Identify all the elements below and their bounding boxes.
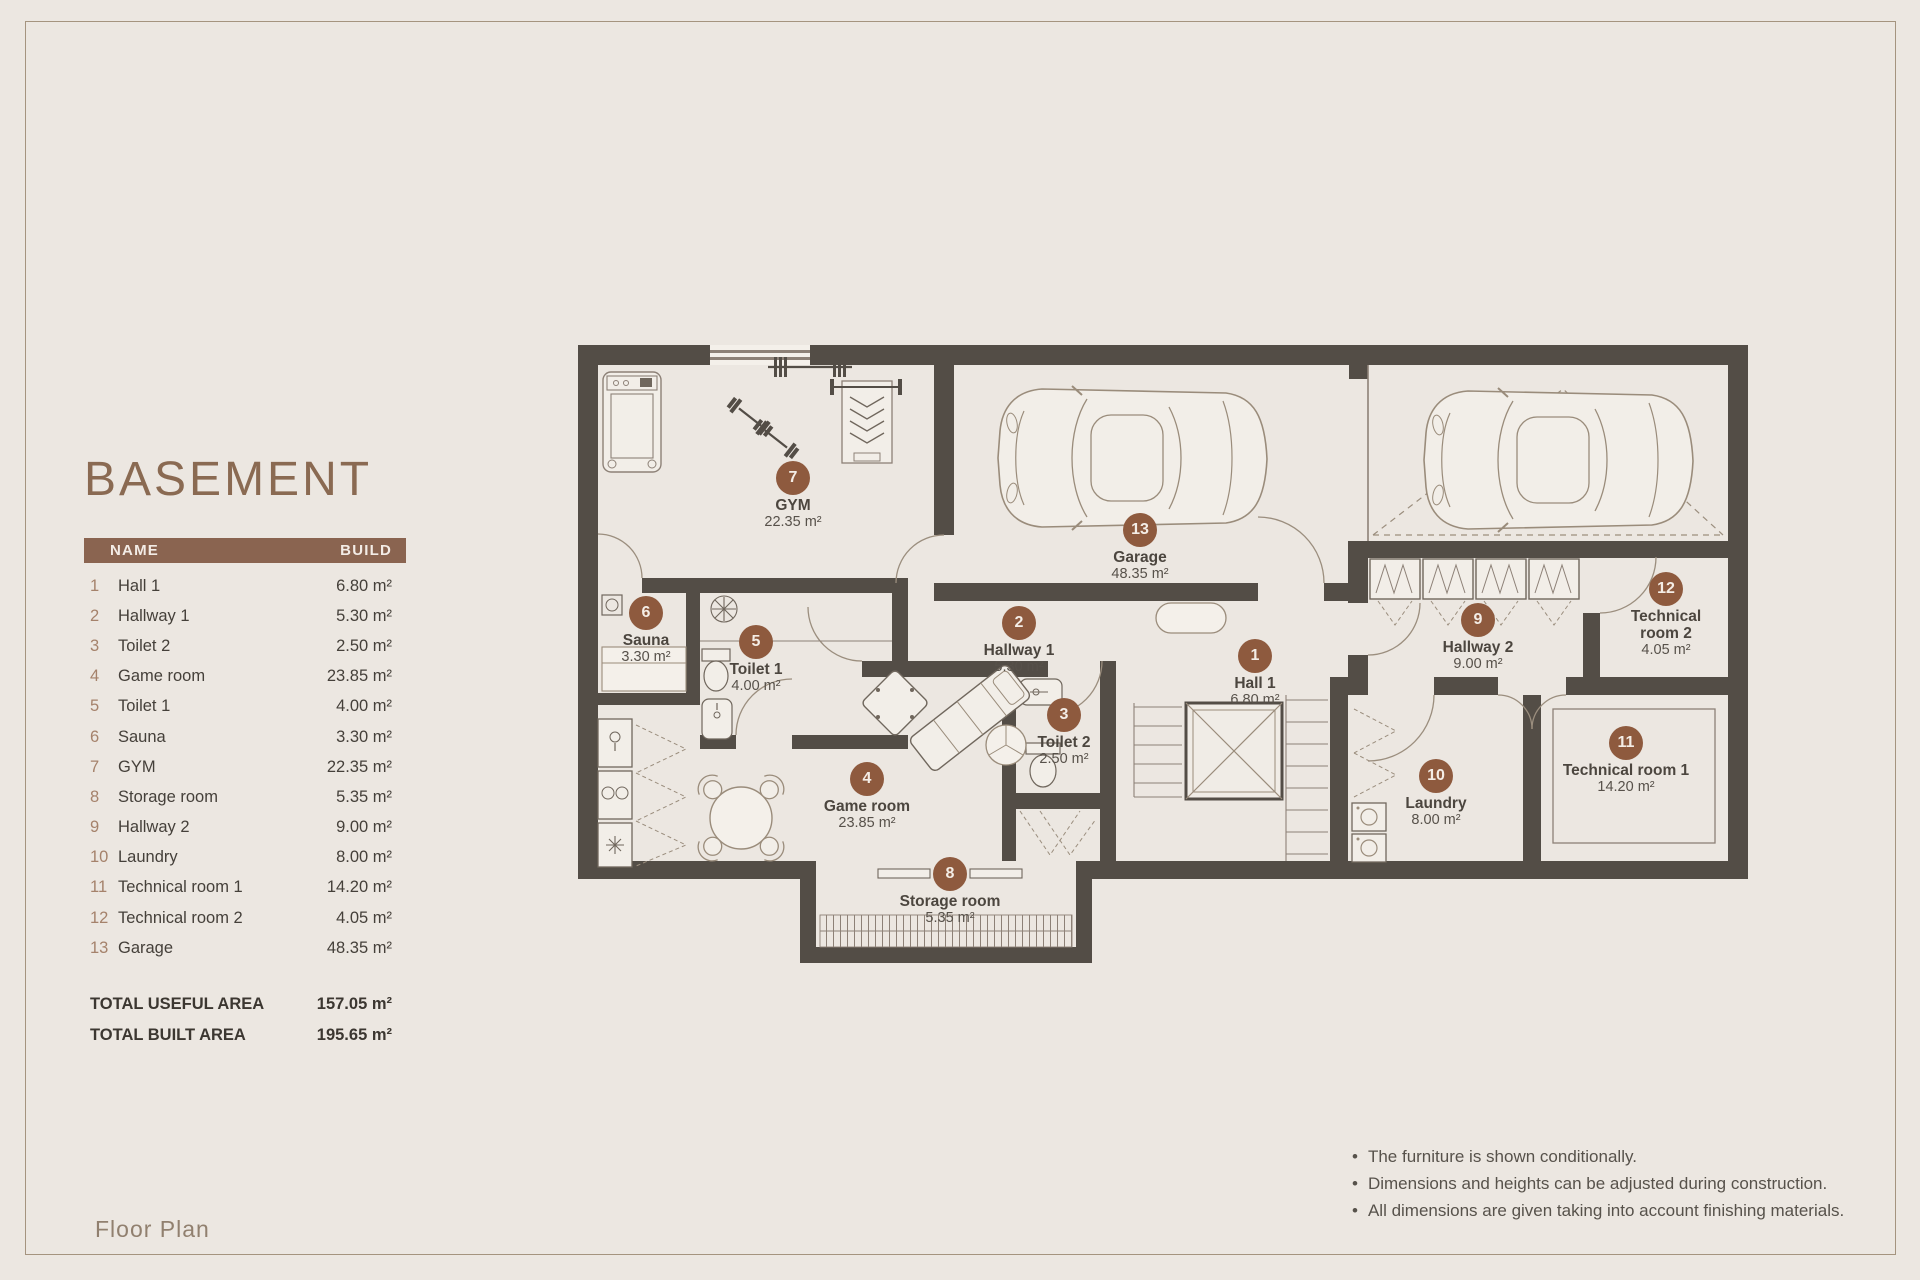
room-area: 23.85 m² (807, 815, 927, 832)
row-number: 8 (90, 788, 118, 807)
row-number: 1 (90, 577, 118, 596)
floor-plan-label: Floor Plan (95, 1216, 210, 1243)
room-number-badge: 11 (1609, 726, 1643, 760)
room-label-storage-room: 8Storage room5.35 m² (890, 857, 1010, 927)
room-area: 5.30 m² (959, 659, 1079, 676)
row-room-area: 6.80 m² (336, 577, 392, 596)
row-number: 6 (90, 728, 118, 747)
room-number-badge: 4 (850, 762, 884, 796)
room-area: 48.35 m² (1080, 566, 1200, 583)
table-header: NAME BUILD (84, 538, 406, 563)
table-header-build: BUILD (340, 542, 392, 559)
row-room-area: 3.30 m² (336, 728, 392, 747)
total-label: TOTAL BUILT AREA (90, 1026, 246, 1045)
room-area: 22.35 m² (733, 514, 853, 531)
room-name: Technical room 2 (1622, 608, 1710, 642)
room-number-badge: 7 (776, 461, 810, 495)
row-room-area: 4.05 m² (336, 909, 392, 928)
page-title: BASEMENT (84, 456, 372, 504)
row-room-area: 14.20 m² (327, 878, 392, 897)
room-name: GYM (733, 497, 853, 514)
row-number: 3 (90, 637, 118, 656)
room-label-game-room: 4Game room23.85 m² (807, 762, 927, 832)
room-number-badge: 10 (1419, 759, 1453, 793)
table-row: 7GYM22.35 m² (84, 752, 406, 782)
bullet-icon: • (1352, 1143, 1358, 1170)
row-room-name: Hall 1 (118, 577, 336, 596)
room-label-sauna: 6Sauna3.30 m² (586, 596, 706, 666)
row-room-area: 5.35 m² (336, 788, 392, 807)
room-table: NAME BUILD 1Hall 16.80 m²2Hallway 15.30 … (84, 538, 406, 1051)
table-row: 11Technical room 114.20 m² (84, 873, 406, 903)
room-name: Storage room (890, 893, 1010, 910)
room-number-badge: 1 (1238, 639, 1272, 673)
room-area: 9.00 m² (1418, 656, 1538, 673)
table-row: 1Hall 16.80 m² (84, 571, 406, 601)
row-number: 13 (90, 939, 118, 958)
row-number: 7 (90, 758, 118, 777)
row-room-name: Technical room 1 (118, 878, 327, 897)
row-room-name: GYM (118, 758, 327, 777)
room-label-technical-room-1: 11Technical room 114.20 m² (1551, 726, 1701, 796)
room-number-badge: 3 (1047, 698, 1081, 732)
table-row: 4Game room23.85 m² (84, 662, 406, 692)
note-item: •The furniture is shown conditionally. (1352, 1143, 1908, 1170)
total-label: TOTAL USEFUL AREA (90, 995, 264, 1014)
room-number-badge: 13 (1123, 513, 1157, 547)
room-number-badge: 12 (1649, 572, 1683, 606)
room-label-technical-room-2: 12Technical room 24.05 m² (1622, 572, 1710, 659)
total-value: 157.05 m² (317, 995, 392, 1014)
room-area: 2.50 m² (1016, 751, 1112, 768)
row-room-area: 8.00 m² (336, 848, 392, 867)
room-area: 3.30 m² (586, 649, 706, 666)
table-row: 9Hallway 29.00 m² (84, 813, 406, 843)
room-name: Hallway 2 (1418, 639, 1538, 656)
row-room-name: Technical room 2 (118, 909, 336, 928)
table-row: 10Laundry8.00 m² (84, 843, 406, 873)
total-row: TOTAL BUILT AREA195.65 m² (84, 1020, 406, 1051)
total-value: 195.65 m² (317, 1026, 392, 1045)
room-label-hallway-1: 2Hallway 15.30 m² (959, 606, 1079, 676)
row-room-area: 2.50 m² (336, 637, 392, 656)
room-name: Toilet 1 (696, 661, 816, 678)
room-label-gym: 7GYM22.35 m² (733, 461, 853, 531)
row-room-name: Hallway 1 (118, 607, 336, 626)
row-room-area: 23.85 m² (327, 667, 392, 686)
room-area: 4.00 m² (696, 678, 816, 695)
room-area: 6.80 m² (1195, 692, 1315, 709)
bullet-icon: • (1352, 1170, 1358, 1197)
row-number: 12 (90, 909, 118, 928)
row-number: 9 (90, 818, 118, 837)
room-labels: 1Hall 16.80 m²2Hallway 15.30 m²3Toilet 2… (578, 345, 1768, 995)
table-row: 6Sauna3.30 m² (84, 722, 406, 752)
room-label-garage: 13Garage48.35 m² (1080, 513, 1200, 583)
room-label-toilet-2: 3Toilet 22.50 m² (1016, 698, 1112, 768)
notes-list: •The furniture is shown conditionally.•D… (1352, 1143, 1908, 1224)
room-area: 8.00 m² (1376, 812, 1496, 829)
row-number: 4 (90, 667, 118, 686)
row-room-name: Hallway 2 (118, 818, 336, 837)
row-number: 2 (90, 607, 118, 626)
note-text: The furniture is shown conditionally. (1368, 1143, 1637, 1170)
room-name: Garage (1080, 549, 1200, 566)
room-name: Sauna (586, 632, 706, 649)
room-label-laundry: 10Laundry8.00 m² (1376, 759, 1496, 829)
room-number-badge: 5 (739, 625, 773, 659)
table-totals: TOTAL USEFUL AREA157.05 m²TOTAL BUILT AR… (84, 989, 406, 1051)
row-number: 5 (90, 697, 118, 716)
note-text: Dimensions and heights can be adjusted d… (1368, 1170, 1827, 1197)
room-number-badge: 2 (1002, 606, 1036, 640)
row-room-name: Toilet 2 (118, 637, 336, 656)
note-text: All dimensions are given taking into acc… (1368, 1197, 1844, 1224)
note-item: •All dimensions are given taking into ac… (1352, 1197, 1908, 1224)
room-label-hall-1: 1Hall 16.80 m² (1195, 639, 1315, 709)
total-row: TOTAL USEFUL AREA157.05 m² (84, 989, 406, 1020)
table-row: 5Toilet 14.00 m² (84, 692, 406, 722)
room-area: 4.05 m² (1622, 642, 1710, 659)
row-room-area: 22.35 m² (327, 758, 392, 777)
row-room-area: 9.00 m² (336, 818, 392, 837)
room-name: Game room (807, 798, 927, 815)
row-number: 11 (90, 878, 118, 897)
row-room-area: 4.00 m² (336, 697, 392, 716)
row-room-name: Sauna (118, 728, 336, 747)
room-number-badge: 9 (1461, 603, 1495, 637)
room-name: Hallway 1 (959, 642, 1079, 659)
room-area: 14.20 m² (1551, 779, 1701, 796)
row-room-name: Game room (118, 667, 327, 686)
table-row: 2Hallway 15.30 m² (84, 601, 406, 631)
floor-plan: 1Hall 16.80 m²2Hallway 15.30 m²3Toilet 2… (578, 345, 1768, 995)
row-room-name: Garage (118, 939, 327, 958)
row-room-area: 48.35 m² (327, 939, 392, 958)
row-room-area: 5.30 m² (336, 607, 392, 626)
row-room-name: Storage room (118, 788, 336, 807)
table-row: 3Toilet 22.50 m² (84, 631, 406, 661)
room-label-toilet-1: 5Toilet 14.00 m² (696, 625, 816, 695)
table-row: 8Storage room5.35 m² (84, 782, 406, 812)
table-header-name: NAME (110, 542, 159, 559)
room-area: 5.35 m² (890, 910, 1010, 927)
table-rows: 1Hall 16.80 m²2Hallway 15.30 m²3Toilet 2… (84, 571, 406, 963)
note-item: •Dimensions and heights can be adjusted … (1352, 1170, 1908, 1197)
row-room-name: Laundry (118, 848, 336, 867)
row-number: 10 (90, 848, 118, 867)
room-name: Technical room 1 (1551, 762, 1701, 779)
floor-plan-page: { "title": "BASEMENT", "footer_label": "… (0, 0, 1920, 1280)
room-label-hallway-2: 9Hallway 29.00 m² (1418, 603, 1538, 673)
table-row: 13Garage48.35 m² (84, 933, 406, 963)
room-number-badge: 8 (933, 857, 967, 891)
room-name: Toilet 2 (1016, 734, 1112, 751)
room-name: Laundry (1376, 795, 1496, 812)
room-name: Hall 1 (1195, 675, 1315, 692)
bullet-icon: • (1352, 1197, 1358, 1224)
room-number-badge: 6 (629, 596, 663, 630)
row-room-name: Toilet 1 (118, 697, 336, 716)
table-row: 12Technical room 24.05 m² (84, 903, 406, 933)
